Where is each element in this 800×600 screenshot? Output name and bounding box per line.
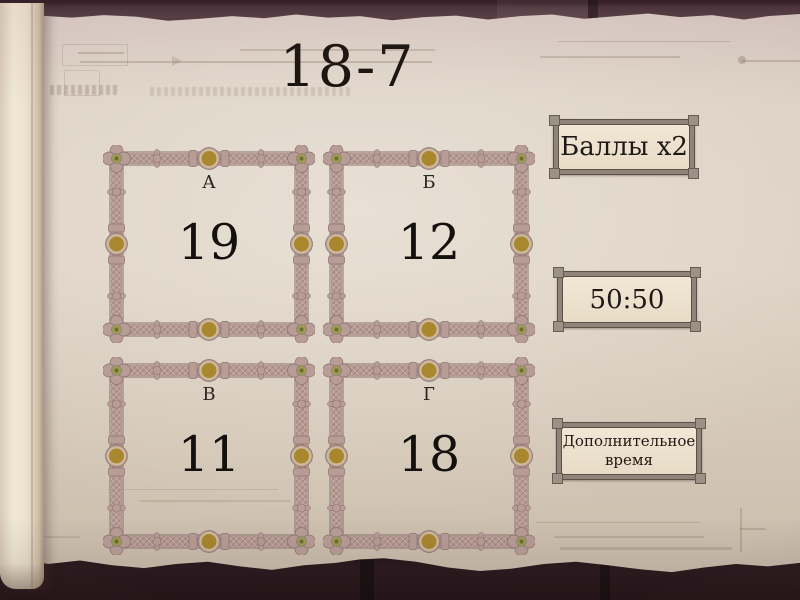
answer-value: 11 [103,427,315,483]
corner-cap [553,267,564,278]
corner-cap [688,168,699,179]
answer-value: 19 [103,215,315,271]
corner-cap [690,267,701,278]
corner-cap [695,473,706,484]
lifeline-extra-time-button[interactable]: Дополнительное время [556,422,702,480]
answer-letter: Г [323,384,535,405]
ink-line [40,536,80,538]
lifeline-label: Баллы x2 [558,124,690,170]
answer-option-b[interactable]: Б 12 [323,145,535,343]
shelf-shade [360,560,374,600]
corner-cap [552,418,563,429]
lifeline-label: 50:50 [562,276,692,323]
shelf-shadow [588,0,598,26]
lifeline-label: Дополнительное время [561,427,697,475]
scroll-curl [0,3,44,589]
top-torn-edge [0,0,800,26]
ink-line [554,536,704,538]
answer-value: 18 [323,427,535,483]
lifeline-fifty-fifty-button[interactable]: 50:50 [557,271,697,328]
corner-cap [553,321,564,332]
answer-letter: Б [323,172,535,193]
shelf-highlight [497,0,588,26]
quiz-screen: 18-7 А 19 Б 12 В 11 Г 18 Баллы x2 50:50 [0,0,800,600]
corner-cap [549,168,560,179]
ink-faded-text [50,85,120,95]
ink-line [78,52,124,54]
ink-ornament [740,508,742,552]
answer-letter: А [103,172,315,193]
shelf-shade [600,560,610,600]
corner-cap [688,115,699,126]
answer-option-g[interactable]: Г 18 [323,357,535,555]
question-title: 18-7 [230,34,465,100]
ink-line [536,522,701,523]
ink-line [742,60,800,62]
corner-cap [552,473,563,484]
corner-cap [695,418,706,429]
lifeline-double-points-button[interactable]: Баллы x2 [553,119,695,175]
answer-letter: В [103,384,315,405]
answer-value: 12 [323,215,535,271]
corner-cap [690,321,701,332]
ink-line [558,41,730,42]
ink-arrow [172,56,182,66]
ink-line [540,56,680,58]
answer-option-a[interactable]: А 19 [103,145,315,343]
ink-ornament [740,528,766,530]
corner-cap [549,115,560,126]
answer-option-v[interactable]: В 11 [103,357,315,555]
ink-knob [738,56,746,64]
ink-line [560,547,732,550]
